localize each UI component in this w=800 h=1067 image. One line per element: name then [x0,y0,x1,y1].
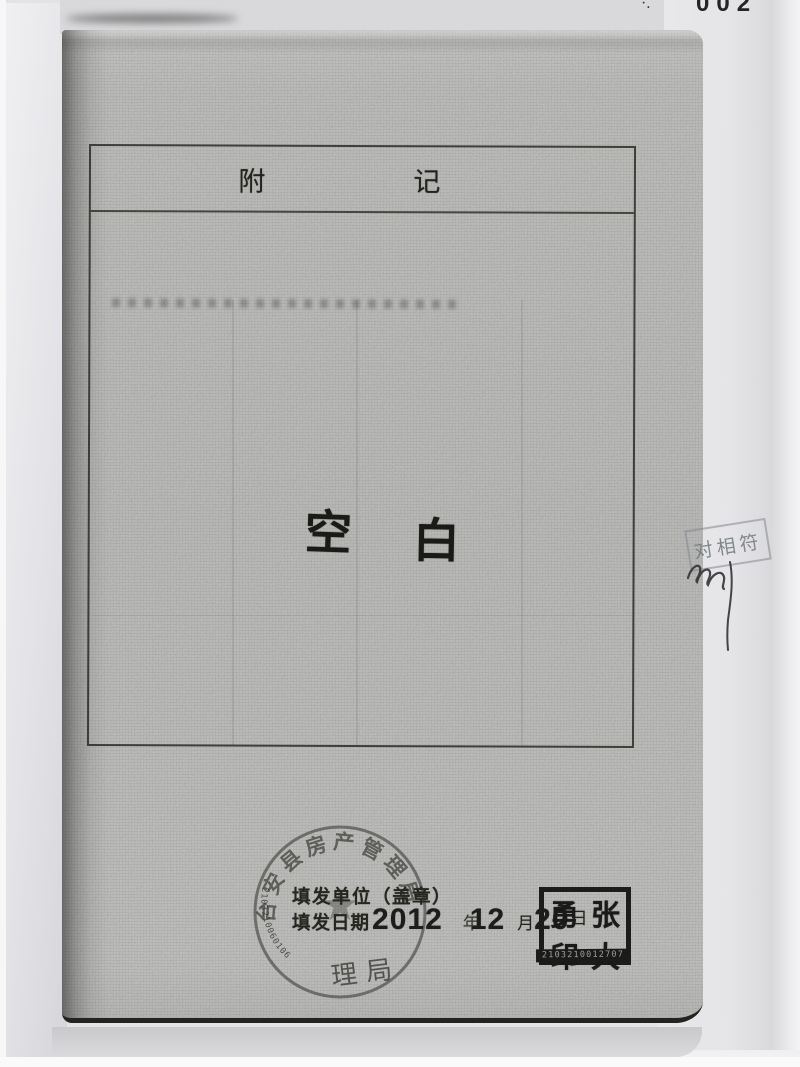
blank-char-bai: 白 [412,502,460,572]
left-page-edge [5,3,67,1057]
issue-year-unit: 年 [463,909,480,934]
pages-below-edge [52,1027,702,1057]
appendix-title-right: 记 [413,160,442,199]
bleedthrough-line [521,300,523,745]
page-number: 002 [696,0,776,13]
document-photo: 附 记 空 白 台安县房产管理局 ★ 2103210060106 理局 填发 [0,0,800,1067]
issue-month-unit: 月 [517,909,534,934]
name-seal-serial: 2103210012707 [536,949,630,963]
photo-left-margin [0,0,6,1067]
top-shadow-smear [66,14,238,23]
blank-char-kong: 空 [304,493,353,564]
bleedthrough-line [92,615,632,616]
photo-bottom-margin [0,1057,800,1067]
issue-date-label: 填发日期 [292,909,370,935]
handwritten-signature [648,538,778,653]
bleedthrough-line [232,300,234,745]
bleedthrough-text-band [112,298,460,309]
seal-char-top-right: 张 [591,892,620,934]
issue-year-value: 2012 [372,905,443,935]
stamp-bottom-text: 理局 [330,954,403,991]
bleedthrough-line [356,300,358,745]
appendix-title-left: 附 [238,159,267,198]
appendix-header: 附 记 [91,146,634,214]
seal-char-top-left: 勇 [550,892,579,934]
appendix-box: 附 记 [87,144,636,748]
corner-mark: ·. [641,0,661,10]
